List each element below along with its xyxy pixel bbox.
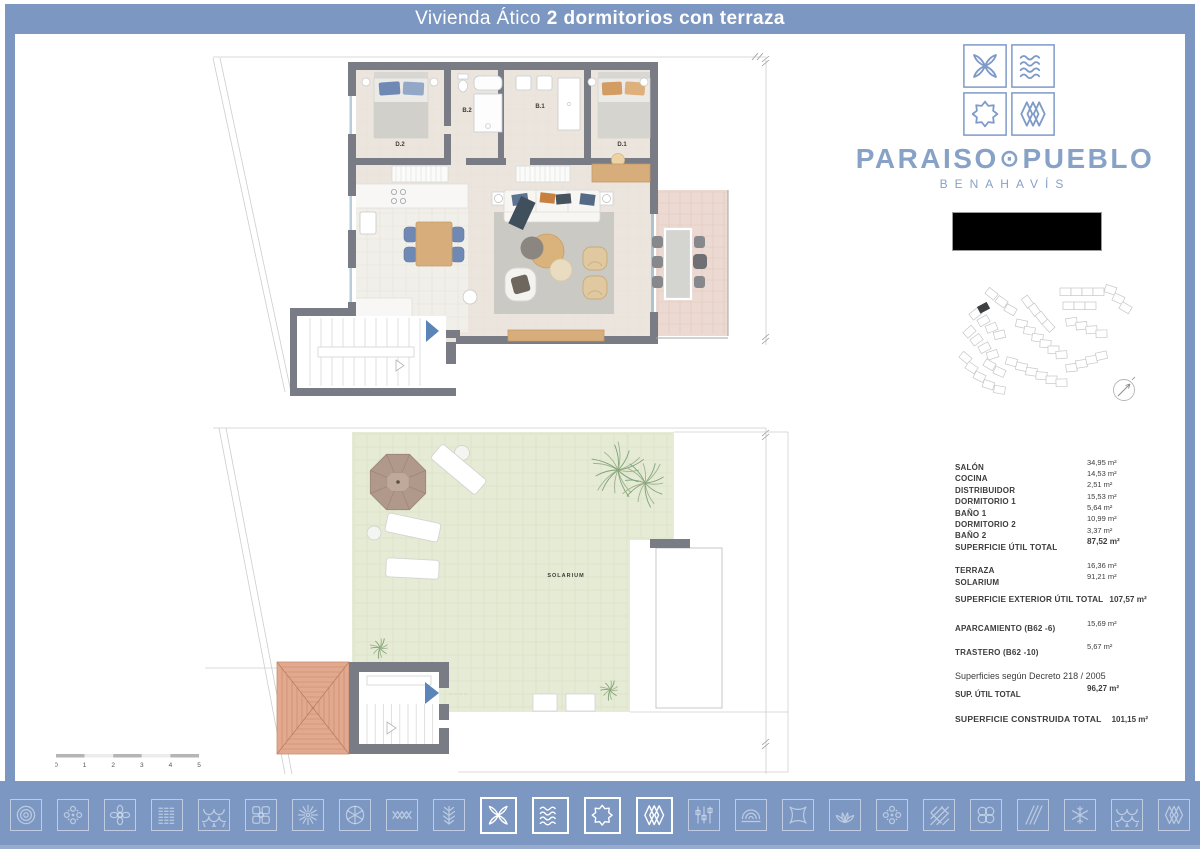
area-row: COCINA 14,53 m² (955, 468, 1155, 479)
label-b1: B.1 (535, 104, 545, 110)
area-value: 15,53 m² (1087, 492, 1117, 501)
frame-right (1185, 33, 1195, 783)
svg-text:1: 1 (83, 762, 87, 769)
diamond-lattice-icon (636, 797, 673, 834)
parasol (370, 454, 425, 509)
coffee-table-dark (521, 237, 544, 260)
bed-d2 (374, 72, 428, 138)
snowflake-icon (1064, 799, 1096, 831)
area-row: SALÓN 34,95 m² (955, 457, 1155, 468)
svg-text:0: 0 (55, 762, 58, 769)
area-label: SOLARIUM (955, 578, 999, 587)
area-row: TRASTERO (B62 -10) 5,67 m² (955, 642, 1155, 653)
area-value: 10,99 m² (1087, 514, 1117, 523)
ray-flower-icon (292, 799, 324, 831)
staircase-upper (297, 316, 446, 388)
frame-left (5, 33, 15, 783)
circle-dot-icon: ⊙ (1000, 145, 1022, 171)
armchair (505, 268, 536, 301)
area-label: SUPERFICIE ÚTIL TOTAL (955, 543, 1057, 552)
area-row: BAÑO 1 5,64 m² (955, 503, 1155, 514)
area-row: DISTRIBUIDOR 2,51 m² (955, 480, 1155, 491)
label-d2: D.2 (395, 142, 405, 148)
area-value: 3,37 m² (1087, 526, 1112, 535)
scale-bar: 012345 (55, 752, 205, 772)
lotus-icon (829, 799, 861, 831)
fridge (360, 212, 376, 234)
constructed-total: SUPERFICIE CONSTRUIDA TOTAL 101,15 m² (955, 714, 1200, 724)
zigzag-icon (386, 799, 418, 831)
diagonal-lines-icon (1017, 799, 1049, 831)
square-cluster-icon (245, 799, 277, 831)
page-title: Vivienda Ático2 dormitorios con terraza (415, 8, 785, 30)
redacted-box (952, 212, 1102, 251)
area-value: 107,57 m² (1109, 595, 1146, 604)
area-label: TRASTERO (B62 -10) (955, 648, 1039, 657)
floorplan-apartment: D.2 B.2 B.1 D.1 (200, 48, 800, 408)
tiled-roof (277, 662, 349, 754)
area-label: SUPERFICIE EXTERIOR ÚTIL TOTAL (955, 595, 1103, 604)
area-value: 5,67 m² (1087, 642, 1112, 651)
svg-text:2: 2 (111, 762, 115, 769)
petal-cross-icon (964, 45, 1006, 87)
sliders-icon (688, 799, 720, 831)
floorplan-solarium: SOLARIUM (200, 418, 800, 782)
brand-subtitle: BENAHAVÍS (855, 177, 1155, 191)
diamond-lattice-icon (1012, 93, 1054, 135)
dashed-lines-icon (151, 799, 183, 831)
area-value: 91,21 m² (1087, 572, 1117, 581)
diagonal-crosshatch-icon (923, 799, 955, 831)
site-plan (948, 276, 1160, 414)
double-circles-icon (970, 799, 1002, 831)
area-value: 34,95 m² (1087, 458, 1117, 467)
waves-icon (532, 797, 569, 834)
dot-flower-icon (57, 799, 89, 831)
decree-block: Superficies según Decreto 218 / 2005 SUP… (955, 671, 1195, 702)
fern-icon (433, 799, 465, 831)
concentric-arcs-icon (735, 799, 767, 831)
eight-point-star-icon (964, 93, 1006, 135)
side-table (550, 259, 572, 281)
petal-knot-icon (104, 799, 136, 831)
area-row: APARCAMIENTO (B62 -6) 15,69 m² (955, 618, 1155, 629)
decree-note: Superficies según Decreto 218 / 2005 (955, 671, 1195, 681)
dot-flower-icon (876, 799, 908, 831)
area-value: 14,53 m² (1087, 469, 1117, 478)
area-row: SUPERFICIE EXTERIOR ÚTIL TOTAL 107,57 m² (955, 595, 1155, 606)
area-row: SUPERFICIE ÚTIL TOTAL 87,52 m² (955, 537, 1155, 548)
svg-text:5: 5 (197, 762, 201, 769)
waves-icon (1012, 45, 1054, 87)
area-value: 2,51 m² (1087, 480, 1112, 489)
svg-text:3: 3 (140, 762, 144, 769)
concentric-circles-icon (10, 799, 42, 831)
room-below-outline (656, 548, 722, 708)
brand-logo-tiles (963, 44, 1055, 136)
svg-text:4: 4 (169, 762, 173, 769)
area-value: 87,52 m² (1087, 537, 1120, 546)
eight-point-star-icon (584, 797, 621, 834)
diamond-lattice-icon (1158, 799, 1190, 831)
area-row: DORMITORIO 1 15,53 m² (955, 491, 1155, 502)
sup-util-total-label: SUP. ÚTIL TOTAL (955, 690, 1021, 699)
header-band: Vivienda Ático2 dormitorios con terraza (5, 4, 1195, 34)
washer (463, 290, 477, 304)
area-row: BAÑO 2 3,37 m² (955, 525, 1155, 536)
areas-table: SALÓN 34,95 m² COCINA 14,53 m² DISTRIBUI… (955, 457, 1155, 653)
area-value: 5,64 m² (1087, 503, 1112, 512)
area-row: DORMITORIO 2 10,99 m² (955, 514, 1155, 525)
sup-util-total-value: 96,27 m² (1087, 684, 1119, 693)
sideboard (508, 330, 604, 341)
footer-pattern-strip (0, 781, 1200, 849)
area-row: TERRAZA 16,36 m² (955, 560, 1155, 571)
label-solarium: SOLARIUM (547, 573, 584, 579)
wardrobe (516, 166, 570, 182)
area-value: 16,36 m² (1087, 561, 1117, 570)
crossed-knots-icon (782, 799, 814, 831)
petal-cross-icon (480, 797, 517, 834)
area-label: APARCAMIENTO (B62 -6) (955, 624, 1055, 633)
brand-name: PARAISO⊙PUEBLO (855, 143, 1155, 175)
area-value: 15,69 m² (1087, 619, 1117, 628)
compass-icon (1114, 377, 1136, 401)
circle-flower-icon (339, 799, 371, 831)
page: Vivienda Ático2 dormitorios con terraza (0, 0, 1200, 849)
wardrobe (392, 166, 448, 182)
fish-scales-icon (1111, 799, 1143, 831)
label-d1: D.1 (617, 142, 627, 148)
area-row: SOLARIUM 91,21 m² (955, 572, 1155, 583)
label-b2: B.2 (462, 108, 472, 114)
fish-scales-icon (198, 799, 230, 831)
desk (592, 164, 650, 182)
